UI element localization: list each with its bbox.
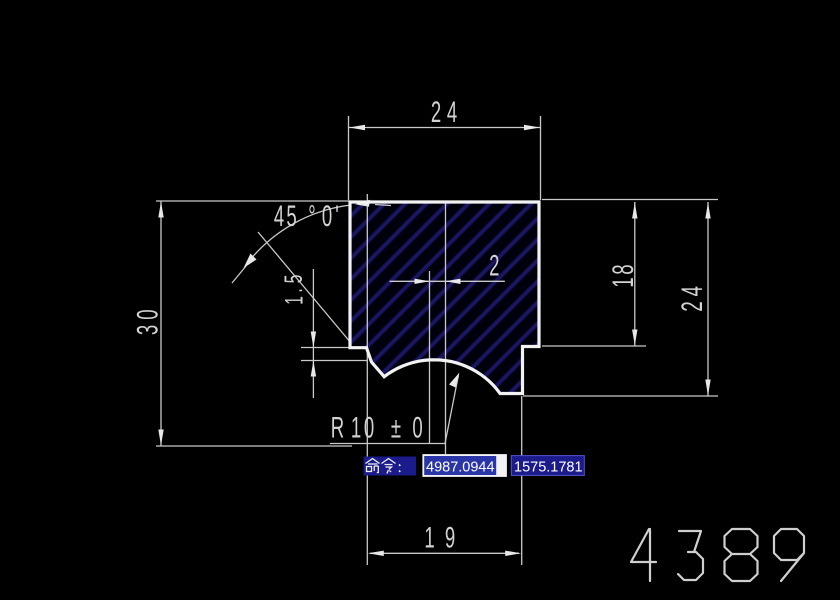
- svg-text:1: 1: [281, 296, 309, 305]
- svg-text:1575.1781: 1575.1781: [514, 460, 583, 476]
- svg-text:5: 5: [286, 200, 296, 234]
- svg-text:9: 9: [445, 521, 455, 555]
- svg-text:4: 4: [274, 200, 284, 234]
- svg-text:0: 0: [131, 309, 165, 319]
- svg-text:2: 2: [676, 301, 710, 311]
- svg-text:1: 1: [424, 521, 434, 555]
- svg-text:0: 0: [364, 411, 374, 445]
- svg-text:2: 2: [489, 249, 499, 283]
- svg-text:': ': [335, 200, 339, 234]
- svg-text:4: 4: [676, 286, 710, 296]
- svg-text:4: 4: [447, 96, 457, 130]
- svg-text:.: .: [280, 288, 308, 292]
- svg-text:±: ±: [391, 411, 401, 445]
- svg-text:3: 3: [131, 325, 165, 335]
- svg-text:R: R: [331, 411, 344, 445]
- svg-text:0: 0: [412, 411, 422, 445]
- svg-text:°: °: [308, 200, 315, 234]
- svg-text:1: 1: [351, 411, 361, 445]
- svg-text:5: 5: [280, 275, 308, 284]
- svg-text:8: 8: [607, 264, 641, 274]
- svg-text:4987.0944: 4987.0944: [426, 460, 495, 476]
- svg-text:1: 1: [607, 277, 641, 287]
- svg-text:2: 2: [431, 96, 441, 130]
- svg-text:0: 0: [322, 200, 332, 234]
